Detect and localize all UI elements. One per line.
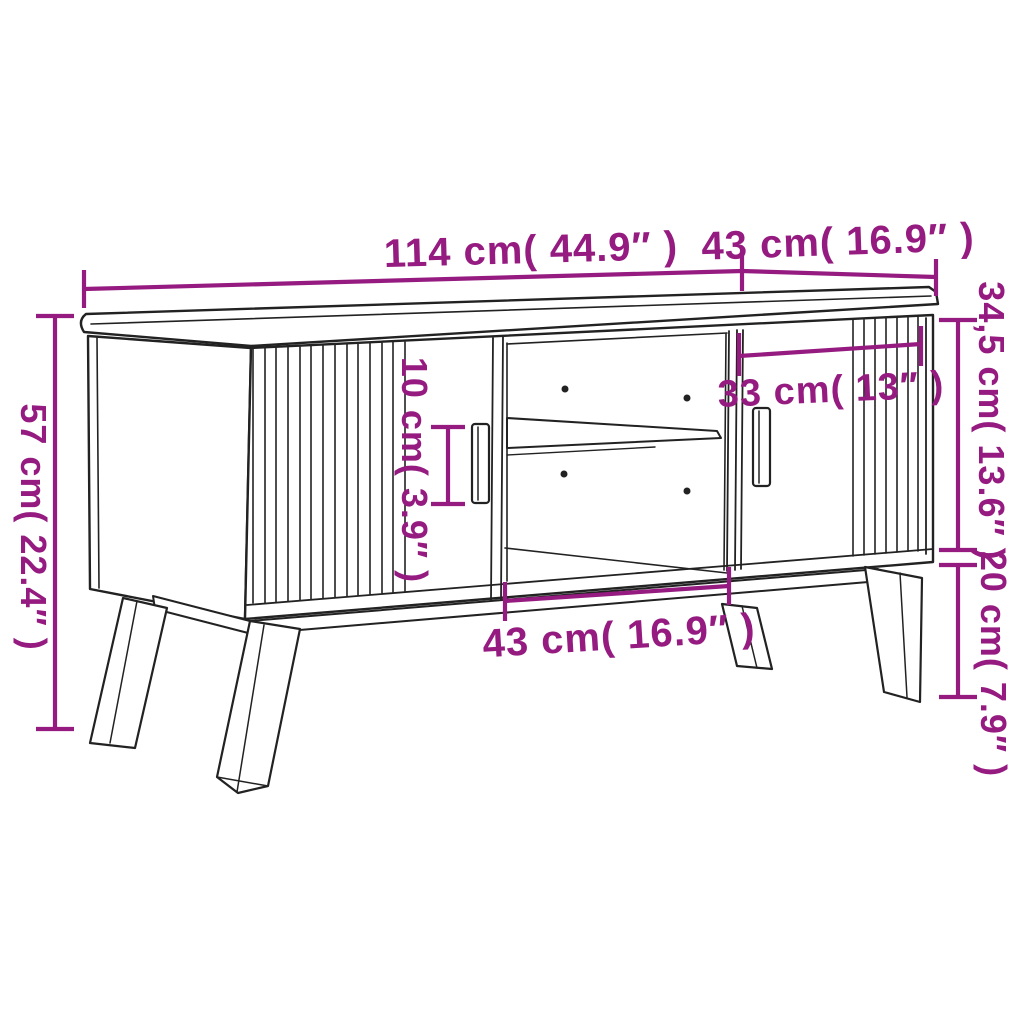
dimension-label-top-depth: 43 cm( 16.9″ ) bbox=[701, 217, 976, 267]
dimension-label-body-height: 34,5 cm( 13.6″ ) bbox=[973, 281, 1009, 560]
dimension-label-leg-height: 20 cm( 7.9″ ) bbox=[975, 551, 1011, 777]
dimension-label-door-width: 33 cm( 13″ ) bbox=[717, 366, 945, 414]
dimension-label-overall-height: 57 cm( 22.4″ ) bbox=[15, 403, 51, 650]
leg-front-right bbox=[865, 567, 922, 702]
dimension-label-top-width: 114 cm( 44.9″ ) bbox=[383, 226, 678, 274]
dimension-label-handle-height: 10 cm( 3.9″ ) bbox=[396, 357, 432, 583]
left-door-handle bbox=[472, 424, 489, 503]
left-side-panel bbox=[88, 336, 251, 619]
dim-leg-height-line bbox=[939, 565, 977, 697]
leg-front-left bbox=[217, 621, 300, 793]
right-door-handle bbox=[753, 408, 770, 486]
tv-cabinet-line-art bbox=[0, 0, 1024, 1024]
dimension-diagram: 114 cm( 44.9″ ) 43 cm( 16.9″ ) 57 cm( 22… bbox=[0, 0, 1024, 1024]
leg-back-left bbox=[90, 598, 167, 748]
